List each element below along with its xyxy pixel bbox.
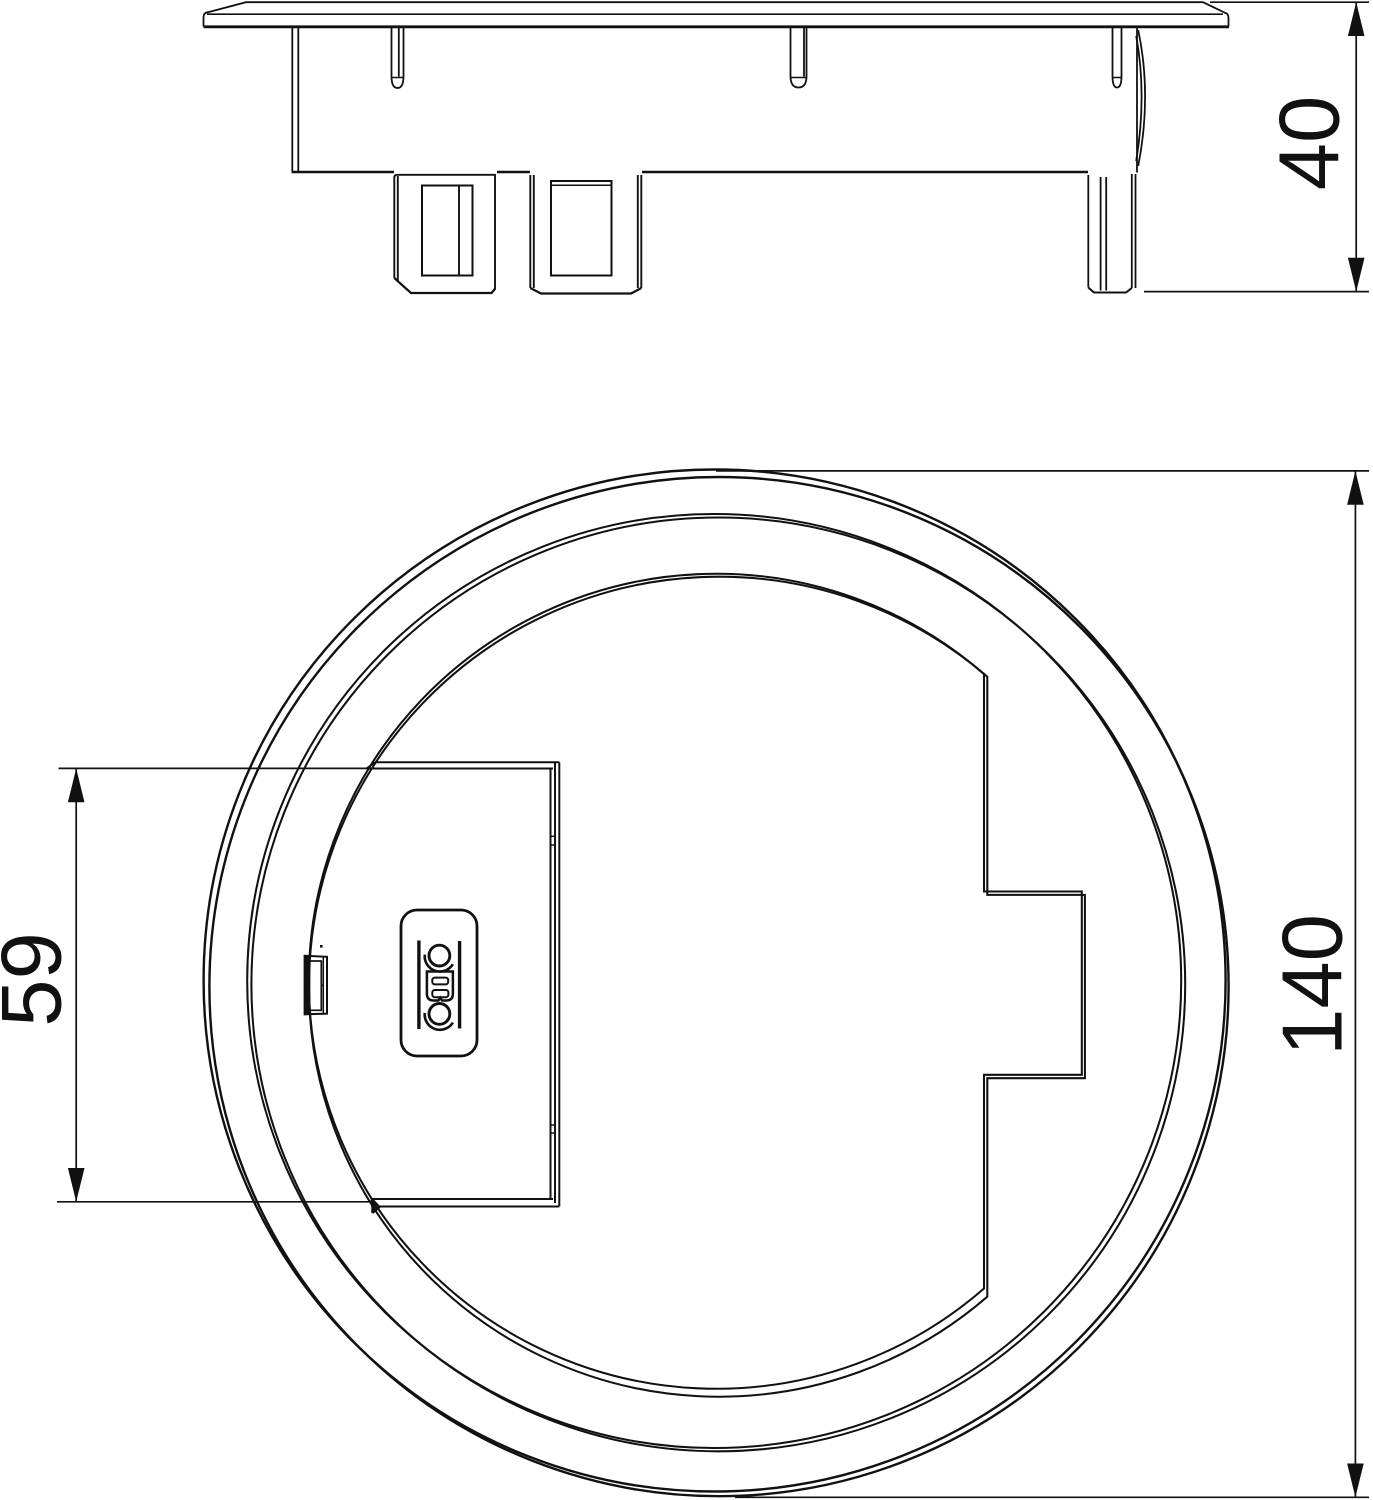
svg-text:40: 40 (1263, 96, 1358, 191)
svg-text:140: 140 (1266, 914, 1361, 1056)
svg-text:59: 59 (0, 932, 80, 1027)
